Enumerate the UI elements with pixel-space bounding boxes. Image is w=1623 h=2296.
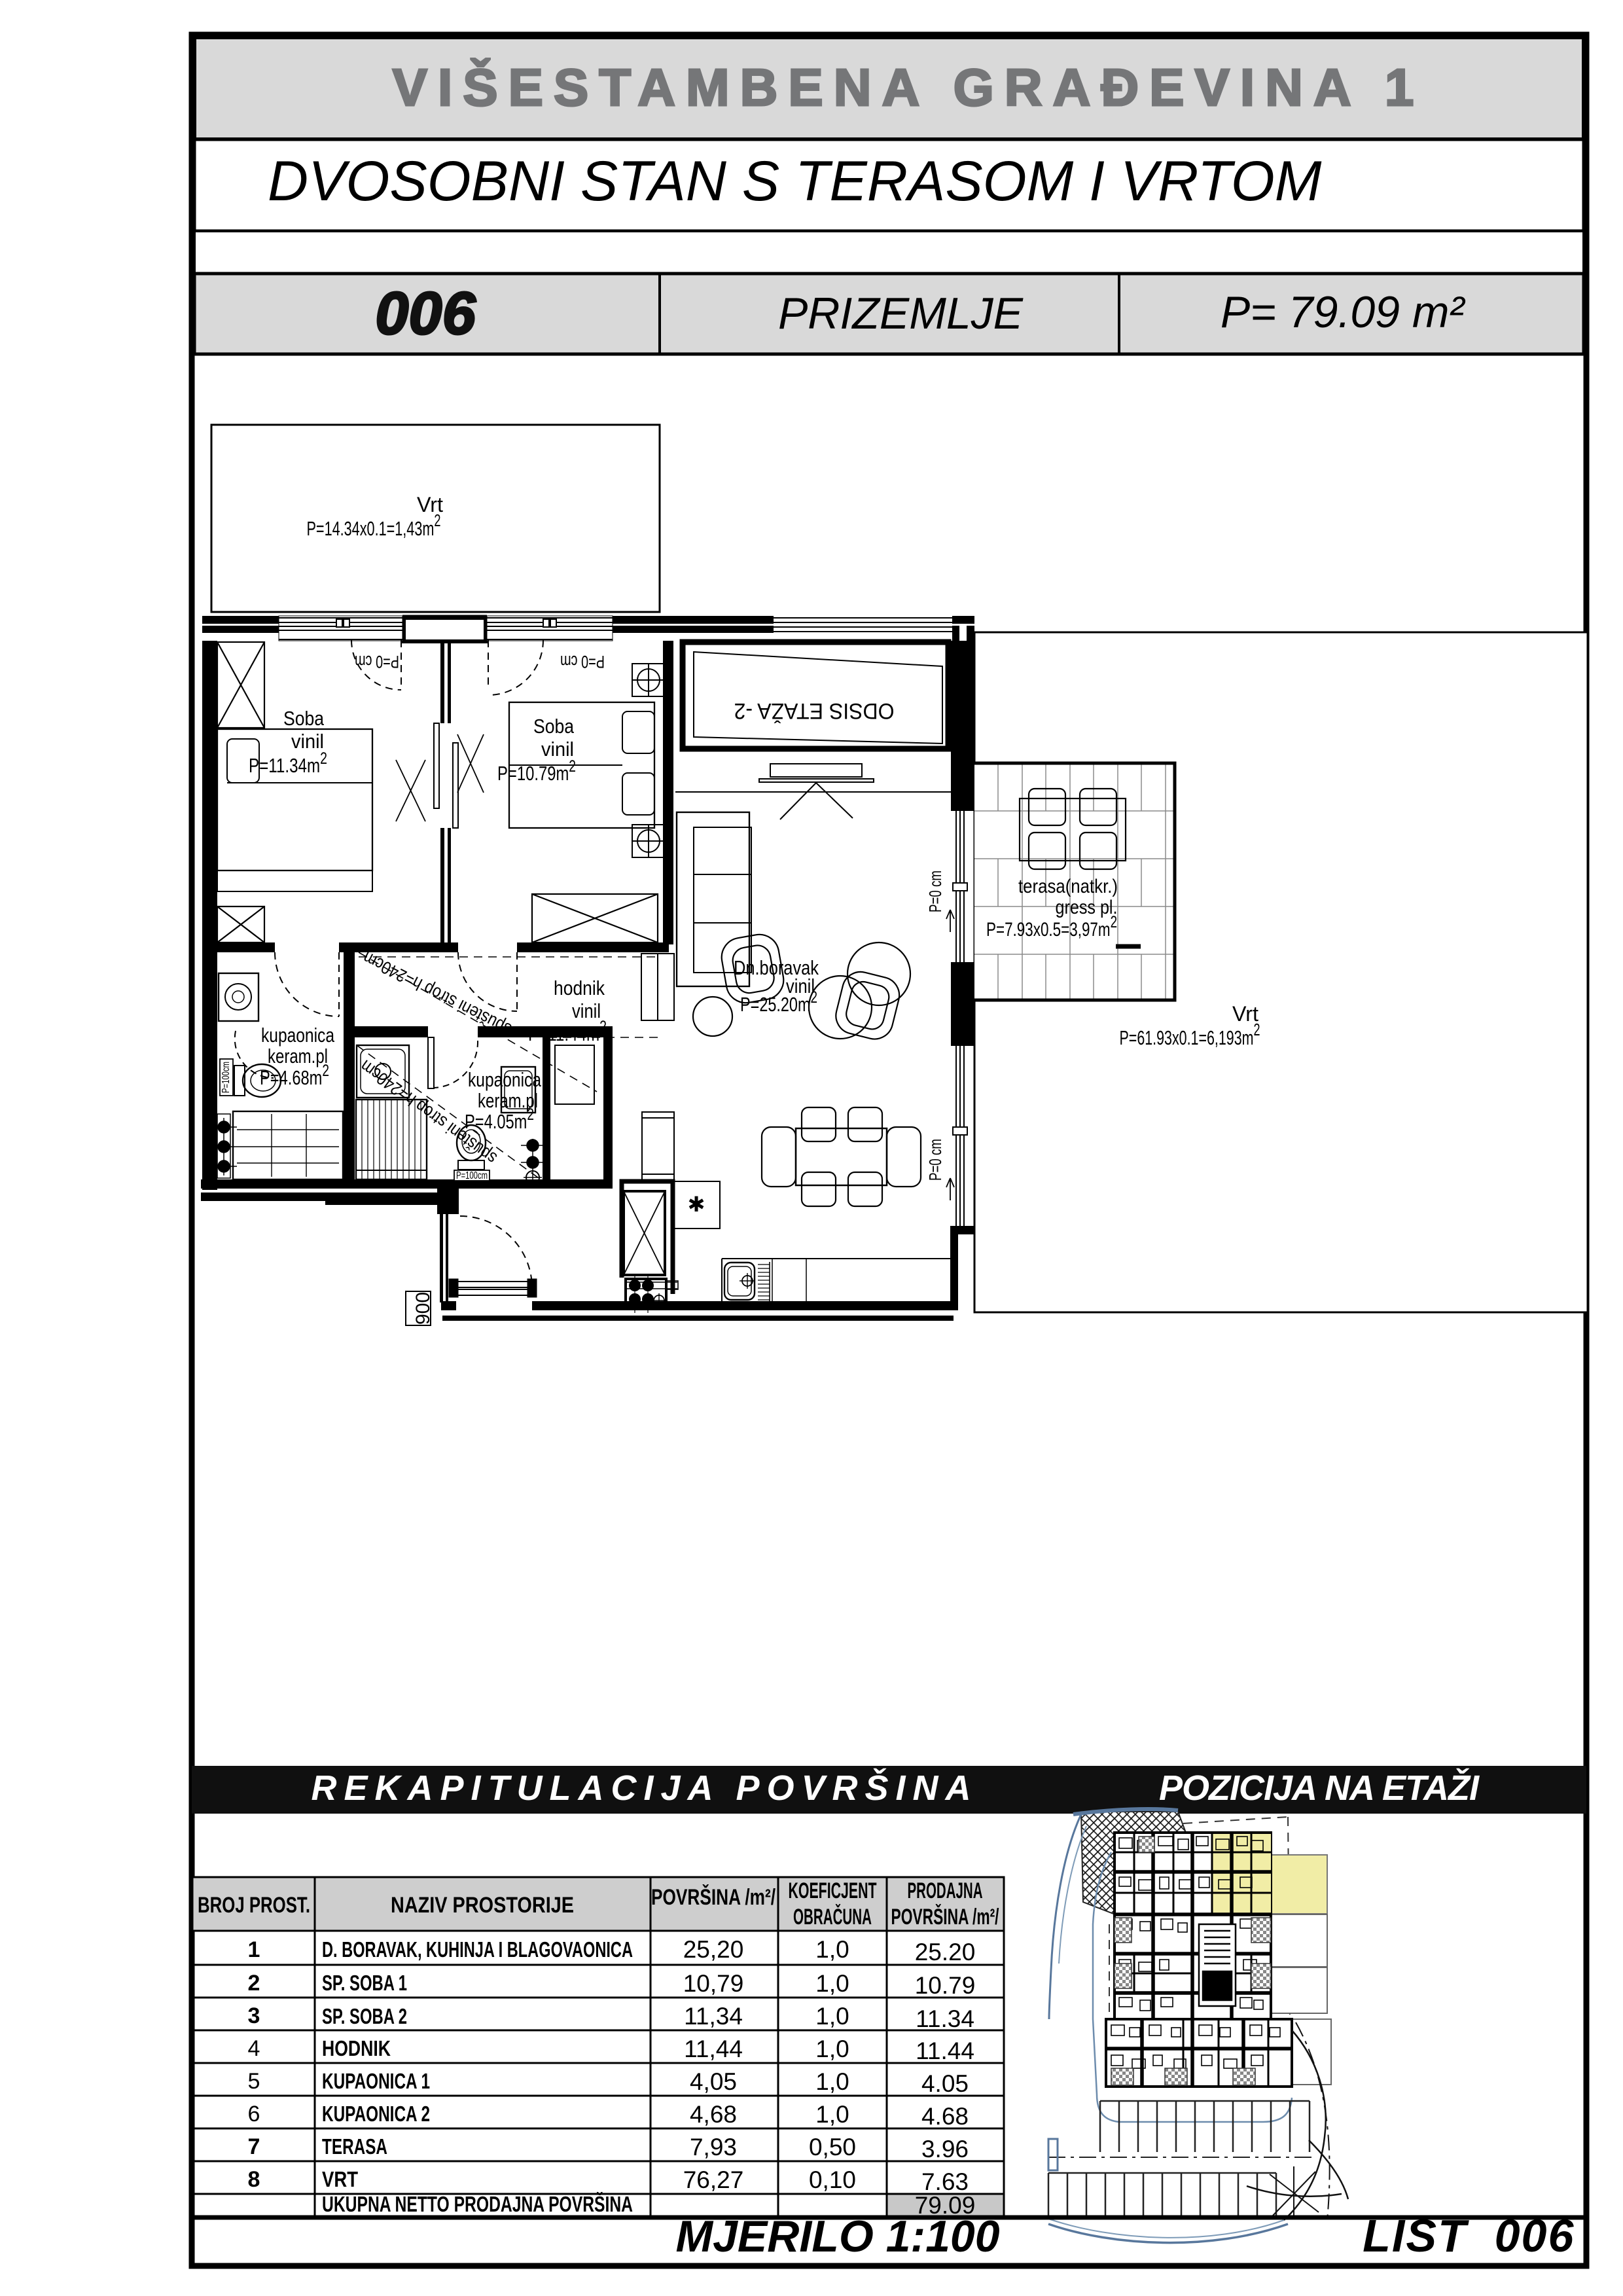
svg-text:P=25.20m2: P=25.20m2 <box>740 988 817 1016</box>
svg-text:KUPAONICA 1: KUPAONICA 1 <box>322 2069 430 2093</box>
svg-text:MJERILO 1:100: MJERILO 1:100 <box>675 2212 999 2261</box>
svg-text:11.34: 11.34 <box>916 2005 974 2032</box>
svg-text:UKUPNA NETTO PRODAJNA POVRŠINA: UKUPNA NETTO PRODAJNA POVRŠINA <box>322 2191 633 2216</box>
svg-text:8: 8 <box>248 2167 260 2192</box>
svg-text:P=10.79m2: P=10.79m2 <box>497 757 576 785</box>
svg-text:POZICIJA NA ETAŽI: POZICIJA NA ETAŽI <box>1159 1768 1480 1808</box>
svg-text:KUPAONICA 2: KUPAONICA 2 <box>322 2102 430 2126</box>
svg-text:SP. SOBA 2: SP. SOBA 2 <box>322 2004 407 2028</box>
svg-text:VRT: VRT <box>322 2167 358 2191</box>
svg-text:vinil: vinil <box>291 730 324 753</box>
svg-text:3.96: 3.96 <box>921 2136 969 2162</box>
svg-text:BROJ PROST.: BROJ PROST. <box>198 1893 310 1918</box>
svg-text:11,34: 11,34 <box>684 2003 743 2030</box>
svg-text:vinil: vinil <box>572 999 601 1022</box>
svg-text:OBRAČUNA: OBRAČUNA <box>793 1904 872 1929</box>
svg-text:TERASA: TERASA <box>322 2134 387 2159</box>
svg-text:5: 5 <box>248 2069 260 2094</box>
svg-text:hodnik: hodnik <box>554 977 605 999</box>
svg-text:SP. SOBA 1: SP. SOBA 1 <box>322 1971 407 1995</box>
svg-text:spušteni strop h=240cm: spušteni strop h=240cm <box>360 948 514 1039</box>
svg-text:1,0: 1,0 <box>815 2003 849 2030</box>
svg-text:DVOSOBNI STAN S TERASOM I VRTO: DVOSOBNI STAN S TERASOM I VRTOM <box>268 150 1322 213</box>
svg-text:P=100cm: P=100cm <box>456 1170 488 1181</box>
svg-text:11,44: 11,44 <box>684 2036 743 2062</box>
svg-text:P=100cm: P=100cm <box>221 1062 232 1093</box>
svg-text:7: 7 <box>248 2134 260 2159</box>
svg-text:1: 1 <box>248 1937 260 1962</box>
svg-text:7.63: 7.63 <box>921 2168 969 2195</box>
svg-text:Soba: Soba <box>283 707 325 730</box>
svg-text:NAZIV PROSTORIJE: NAZIV PROSTORIJE <box>391 1893 574 1918</box>
svg-text:4: 4 <box>248 2036 260 2061</box>
svg-text:P=4.68m2: P=4.68m2 <box>260 1062 329 1089</box>
svg-text:7,93: 7,93 <box>690 2134 737 2161</box>
svg-text:HODNIK: HODNIK <box>322 2036 391 2060</box>
svg-text:0,50: 0,50 <box>809 2134 856 2161</box>
svg-text:006: 006 <box>375 280 476 347</box>
svg-text:PRODAJNA: PRODAJNA <box>908 1878 983 1903</box>
svg-text:P= 79.09 m²: P= 79.09 m² <box>1221 287 1466 337</box>
svg-text:6: 6 <box>248 2102 260 2126</box>
svg-text:keram.pl: keram.pl <box>268 1045 328 1067</box>
svg-text:P=0 cm: P=0 cm <box>925 870 945 912</box>
svg-text:REKAPITULACIJA POVRŠINA: REKAPITULACIJA POVRŠINA <box>311 1768 978 1808</box>
svg-text:4,68: 4,68 <box>690 2101 737 2128</box>
svg-text:P=11.44m2: P=11.44m2 <box>528 1018 607 1045</box>
svg-text:PRIZEMLJE: PRIZEMLJE <box>778 289 1024 338</box>
svg-text:kupaonica: kupaonica <box>468 1068 542 1091</box>
svg-text:terasa(natkr.): terasa(natkr.) <box>1018 876 1118 897</box>
svg-text:1,0: 1,0 <box>815 1936 849 1963</box>
svg-text:006: 006 <box>1495 2210 1575 2261</box>
svg-text:11.44: 11.44 <box>916 2037 974 2064</box>
svg-text:Soba: Soba <box>533 715 575 738</box>
svg-text:KOEFICJENT: KOEFICJENT <box>789 1878 877 1903</box>
svg-text:76,27: 76,27 <box>683 2166 744 2193</box>
svg-text:POVRŠINA /m²/: POVRŠINA /m²/ <box>651 1884 776 1910</box>
svg-text:10,79: 10,79 <box>683 1970 744 1997</box>
svg-text:gress pl.: gress pl. <box>1056 897 1118 918</box>
svg-text:1,0: 1,0 <box>815 1970 849 1997</box>
svg-text:900: 900 <box>412 1292 434 1325</box>
svg-text:ODSIS ETAŽA -2: ODSIS ETAŽA -2 <box>734 698 895 723</box>
svg-text:25,20: 25,20 <box>683 1936 744 1963</box>
svg-text:1,0: 1,0 <box>815 2036 849 2062</box>
svg-text:4.68: 4.68 <box>921 2103 969 2130</box>
svg-text:0,10: 0,10 <box>809 2166 856 2193</box>
svg-text:VIŠESTAMBENA GRAĐEVINA 1: VIŠESTAMBENA GRAĐEVINA 1 <box>393 58 1425 117</box>
svg-text:P=4.05m2: P=4.05m2 <box>465 1105 534 1133</box>
svg-text:kupaonica: kupaonica <box>261 1024 335 1047</box>
svg-text:3: 3 <box>248 2003 260 2028</box>
svg-text:4,05: 4,05 <box>690 2068 737 2095</box>
svg-text:LIST: LIST <box>1363 2210 1469 2261</box>
svg-text:25.20: 25.20 <box>915 1939 976 1965</box>
svg-text:✱: ✱ <box>688 1193 705 1216</box>
svg-text:P=0 cm: P=0 cm <box>355 652 399 672</box>
svg-text:1,0: 1,0 <box>815 2101 849 2128</box>
svg-text:2: 2 <box>248 1971 260 1996</box>
svg-text:P=0 cm: P=0 cm <box>925 1139 945 1181</box>
svg-text:P=11.34m2: P=11.34m2 <box>249 749 327 777</box>
svg-text:10.79: 10.79 <box>915 1972 976 1999</box>
svg-text:D. BORAVAK, KUHINJA I BLAGOVAO: D. BORAVAK, KUHINJA I BLAGOVAONICA <box>322 1937 633 1962</box>
svg-text:POVRŠINA /m²/: POVRŠINA /m²/ <box>891 1904 999 1929</box>
svg-text:P=0 cm: P=0 cm <box>560 652 605 672</box>
svg-text:1,0: 1,0 <box>815 2068 849 2095</box>
svg-text:4.05: 4.05 <box>921 2070 969 2097</box>
